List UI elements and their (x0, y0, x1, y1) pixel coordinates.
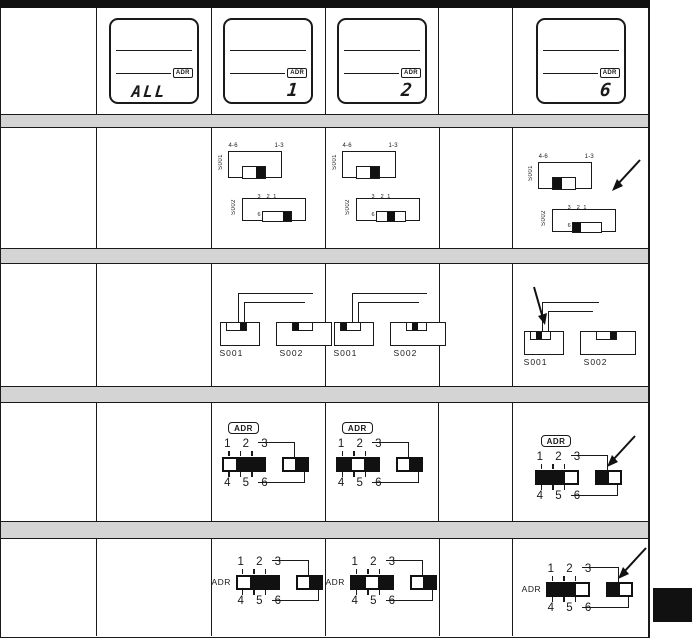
s001-s002-switch-diagram: S001 S002 (326, 288, 439, 362)
arrow-icon (604, 157, 644, 195)
empty-cell (1, 128, 97, 248)
aux-knob (298, 577, 309, 588)
s001-label: S001 (220, 348, 244, 358)
aux-switch (410, 575, 437, 590)
s001-s002-switch-diagram: S001 S002 (212, 288, 325, 362)
s001-s002-switch-diagram: 4-6 1-3 S001 3 2 1 6 5 4 S002 (326, 142, 439, 234)
connector-line (571, 485, 618, 496)
arrow-icon (599, 433, 639, 471)
s001-label: S001 (218, 154, 224, 170)
tick (240, 451, 242, 456)
row-adr-badge-switches: ADR 1 2 3 4 5 6 ADR 1 2 3 (1, 403, 648, 521)
aux-switch (296, 575, 323, 590)
s002-switch-body (242, 198, 306, 221)
adr-dip-switch-diagram: ADR 1 2 3 4 5 6 (522, 563, 640, 627)
tick (342, 451, 344, 456)
tick (365, 451, 367, 456)
adr-switch-cell-2: ADR 1 2 3 4 5 6 (326, 403, 440, 521)
s001-label: S001 (528, 165, 534, 181)
s002-switch-body (356, 198, 420, 221)
dip-knob (565, 472, 577, 483)
adr-label: ADR (212, 577, 231, 587)
s001-slider-track (356, 166, 380, 179)
group-label-left: 4-6 (229, 143, 238, 149)
s002-slider-track (292, 322, 313, 331)
s002-switch-body (552, 209, 616, 232)
tick (575, 576, 577, 581)
adr-badge: ADR (541, 435, 572, 447)
slide-switch-cell-1: 4-6 1-3 S001 3 2 1 6 5 4 S002 (212, 128, 326, 248)
s002-slider-track (572, 222, 602, 233)
segment-line (344, 73, 399, 74)
slide-switch-cell-6: 4-6 1-3 S001 3 2 1 6 5 4 S002 (513, 128, 648, 248)
adr-badge: ADR (600, 68, 620, 78)
connector-line (258, 472, 305, 483)
adr-switch-cell-6: ADR 1 2 3 4 5 6 (513, 403, 648, 521)
adr-dip-switch-diagram: ADR 1 2 3 4 5 6 (326, 556, 439, 620)
row-lcd-displays: ADR ALL ADR 1 ADR 2 (1, 8, 648, 114)
group-label-right: 1-3 (585, 154, 594, 160)
dip-knob (238, 577, 250, 588)
lcd-cell-1: ADR 1 (212, 8, 326, 114)
empty-cell (97, 264, 212, 386)
empty-cell (97, 403, 212, 521)
group-label-left: 4-6 (539, 154, 548, 160)
lcd-cell-all: ADR ALL (97, 8, 212, 114)
arrow-icon (526, 285, 552, 329)
adr-badge: ADR (342, 422, 373, 434)
lcd-display: ADR 2 (337, 18, 427, 104)
dip-knob (224, 459, 236, 470)
manual-page: ADR ALL ADR 1 ADR 2 (0, 0, 692, 643)
s002-label: S002 (541, 210, 547, 226)
adr-switch-cell-1: ADR 1 2 3 4 5 6 (212, 539, 326, 636)
empty-cell (1, 539, 97, 636)
s001-s002-switch-diagram: 4-6 1-3 S001 3 2 1 6 5 4 S002 (522, 153, 640, 245)
adr-badge: ADR (287, 68, 307, 78)
s001-slider-knob (341, 323, 347, 330)
adr-dip-switch-diagram: ADR 1 2 3 4 5 6 (212, 556, 325, 620)
lcd-value: ALL (110, 82, 188, 101)
lcd-value: 2 (400, 80, 413, 101)
tick (541, 464, 543, 469)
adr-switch-cell-1: ADR 1 2 3 4 5 6 (212, 403, 326, 521)
empty-cell (439, 403, 513, 521)
gray-separator (1, 248, 648, 264)
dip-bar (222, 457, 266, 472)
s001-label: S001 (334, 348, 358, 358)
adr-label: ADR (522, 584, 541, 594)
gray-separator (1, 521, 648, 539)
slide-switch-cell-2: 4-6 1-3 S001 3 2 1 6 5 4 S002 (326, 128, 440, 248)
top-rule (0, 0, 650, 8)
gray-separator (1, 114, 648, 128)
adr-badge: ADR (228, 422, 259, 434)
s001-switch-body (524, 331, 564, 355)
aux-knob (412, 577, 423, 588)
notch-switch-cell-6: S001 S002 (513, 264, 648, 386)
s002-switch-body (390, 322, 446, 346)
tick (265, 569, 267, 574)
tick (253, 569, 255, 574)
segment-line (116, 50, 192, 51)
lcd-value: 1 (286, 80, 299, 101)
address-settings-table: ADR ALL ADR 1 ADR 2 (0, 8, 650, 638)
tick (242, 569, 244, 574)
s002-label: S002 (584, 357, 608, 367)
leader-line (358, 302, 419, 323)
dip-bar (535, 470, 579, 485)
adr-badge: ADR (173, 68, 193, 78)
s002-label: S002 (394, 348, 418, 358)
s002-slider-knob (610, 332, 616, 339)
arrow-icon (610, 545, 650, 583)
dip-bar (336, 457, 380, 472)
connector-line (272, 560, 309, 576)
s002-label: S002 (345, 199, 351, 215)
tick (356, 569, 358, 574)
tick (367, 569, 369, 574)
lcd-value: 6 (599, 80, 612, 101)
connector-line (386, 560, 423, 576)
s002-label: S002 (231, 199, 237, 215)
adr-switch-cell-6: ADR 1 2 3 4 5 6 (513, 539, 648, 636)
s001-slider-track (552, 177, 576, 190)
lcd-display: ADR ALL (109, 18, 199, 104)
tick (552, 576, 554, 581)
connector-line (258, 442, 295, 458)
lcd-display: ADR 6 (536, 18, 626, 104)
s002-slider-track (596, 331, 617, 340)
adr-dip-switch-diagram: ADR 1 2 3 4 5 6 (216, 422, 320, 502)
s002-slider-knob (387, 212, 395, 221)
empty-cell (97, 128, 212, 248)
lcd-cell-2: ADR 2 (326, 8, 440, 114)
connector-line (372, 442, 409, 458)
tick (563, 576, 565, 581)
aux-switch (595, 470, 622, 485)
dip-bar (546, 582, 590, 597)
segment-line (543, 50, 619, 51)
dip-bar (350, 575, 394, 590)
tick (251, 451, 253, 456)
aux-knob (284, 459, 295, 470)
group-label-left: 4-6 (343, 143, 352, 149)
s001-switch-body (228, 151, 282, 178)
segment-line (543, 73, 598, 74)
gray-separator (1, 386, 648, 403)
adr-label: ADR (326, 577, 345, 587)
s001-slider-knob (256, 167, 265, 178)
s002-slider-knob (573, 223, 581, 232)
lcd-display: ADR 1 (223, 18, 313, 104)
s001-switch-body (538, 162, 592, 189)
s001-slider-track (340, 322, 361, 331)
s001-slider-track (226, 322, 247, 331)
s002-slider-track (406, 322, 427, 331)
tick (228, 451, 230, 456)
s001-slider-track (242, 166, 266, 179)
s001-slider-knob (553, 178, 562, 189)
segment-line (230, 50, 306, 51)
s002-slider-track (376, 211, 406, 222)
aux-switch (396, 457, 423, 472)
empty-cell (440, 128, 514, 248)
notch-switch-cell-1: S001 S002 (212, 264, 326, 386)
tick (552, 464, 554, 469)
tick (564, 464, 566, 469)
empty-cell (439, 8, 513, 114)
tick (353, 451, 355, 456)
s002-switch-body (276, 322, 332, 346)
s002-slider-knob (412, 323, 418, 330)
empty-cell (440, 264, 514, 386)
adr-switch-cell-2: ADR 1 2 3 4 5 6 (326, 539, 440, 636)
s001-s002-switch-diagram: S001 S002 (516, 297, 646, 371)
s001-switch-body (220, 322, 260, 346)
empty-cell (1, 403, 97, 521)
s002-slider-knob (293, 323, 299, 330)
s001-slider-knob (240, 323, 246, 330)
dip-knob (366, 577, 378, 588)
empty-cell (1, 264, 97, 386)
s001-switch-body (342, 151, 396, 178)
leader-line (244, 302, 305, 323)
s001-label: S001 (524, 357, 548, 367)
row-adr-text-switches: ADR 1 2 3 4 5 6 ADR 1 2 3 (1, 539, 648, 636)
adr-dip-switch-diagram: ADR 1 2 3 4 5 6 (330, 422, 434, 502)
segment-line (116, 73, 171, 74)
connector-line (582, 597, 629, 608)
row-notch-switches: S001 S002 (1, 264, 648, 386)
lcd-cell-6: ADR 6 (513, 8, 648, 114)
s001-s002-switch-diagram: 4-6 1-3 S001 3 2 1 6 5 4 S002 (212, 142, 325, 234)
connector-line (386, 590, 433, 601)
tick (379, 569, 381, 574)
connector-line (372, 472, 419, 483)
dip-knob (352, 459, 364, 470)
leader-line (548, 311, 593, 332)
s001-slider-knob (536, 332, 542, 339)
dip-bar (236, 575, 280, 590)
notch-switch-cell-2: S001 S002 (326, 264, 440, 386)
segment-line (344, 50, 420, 51)
s002-switch-body (580, 331, 636, 355)
empty-cell (1, 8, 97, 114)
dip-knob (576, 584, 588, 595)
s001-slider-track (530, 331, 551, 340)
group-label-right: 1-3 (389, 143, 398, 149)
s002-label: S002 (280, 348, 304, 358)
s002-slider-knob (283, 212, 291, 221)
row-slide-switches: 4-6 1-3 S001 3 2 1 6 5 4 S002 (1, 128, 648, 248)
connector-line (272, 590, 319, 601)
adr-dip-switch-diagram: ADR 1 2 3 4 5 6 (529, 435, 633, 515)
s002-slider-track (262, 211, 292, 222)
page-tab (653, 588, 692, 622)
s001-slider-knob (370, 167, 379, 178)
s001-label: S001 (332, 154, 338, 170)
aux-switch (606, 582, 633, 597)
empty-cell (97, 539, 212, 636)
aux-knob (620, 584, 631, 595)
group-label-right: 1-3 (275, 143, 284, 149)
s001-switch-body (334, 322, 374, 346)
aux-switch (282, 457, 309, 472)
aux-knob (609, 472, 620, 483)
segment-line (230, 73, 285, 74)
aux-knob (398, 459, 409, 470)
empty-cell (440, 539, 514, 636)
adr-badge: ADR (401, 68, 421, 78)
